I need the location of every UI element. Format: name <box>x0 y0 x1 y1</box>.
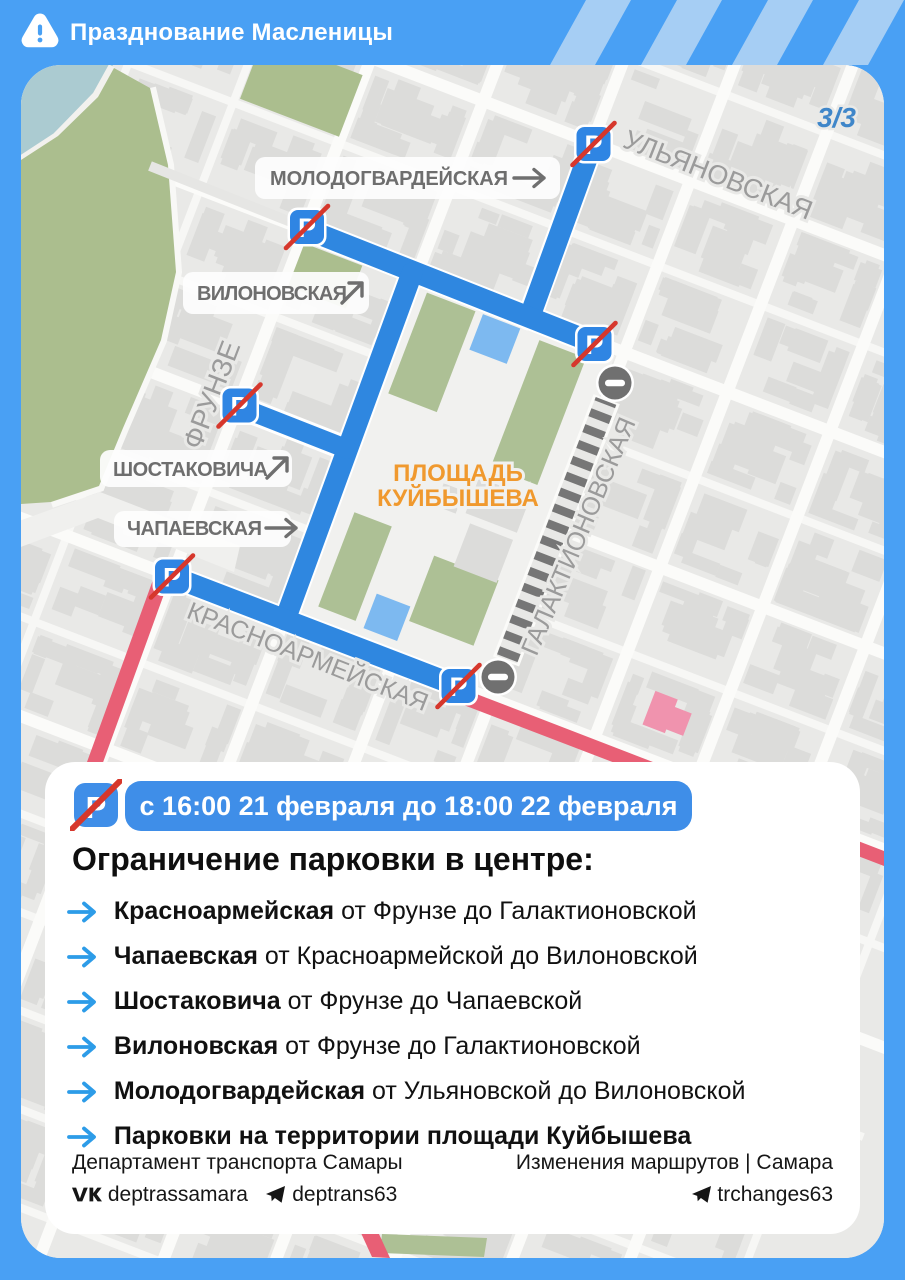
svg-text:КУЙБЫШЕВА: КУЙБЫШЕВА <box>377 484 539 512</box>
svg-text:ВИЛОНОВСКАЯ: ВИЛОНОВСКАЯ <box>197 283 347 305</box>
svg-text:ШОСТАКОВИЧА: ШОСТАКОВИЧА <box>113 459 268 481</box>
svg-text:МОЛОДОГВАРДЕЙСКАЯ: МОЛОДОГВАРДЕЙСКАЯ <box>270 166 508 190</box>
svg-text:ЧАПАЕВСКАЯ: ЧАПАЕВСКАЯ <box>127 518 262 540</box>
svg-text:3/3: 3/3 <box>817 102 856 133</box>
svg-text:ПЛОЩАДЬ: ПЛОЩАДЬ <box>393 460 523 487</box>
